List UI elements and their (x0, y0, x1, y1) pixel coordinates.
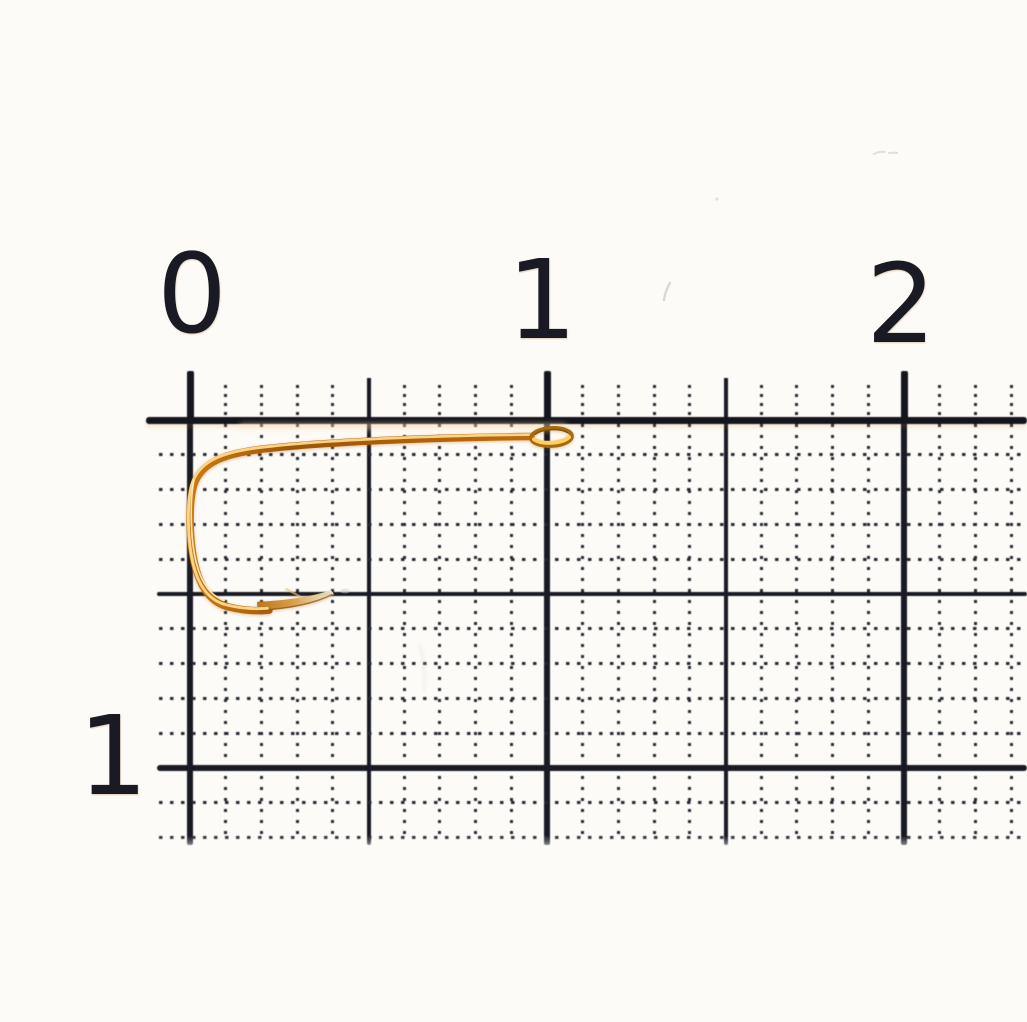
photo-hook-on-graph-paper: 0 1 2 1 (0, 0, 1027, 1022)
hook-wire-highlight (188, 435, 531, 609)
hook-bend-bright-core (191, 480, 225, 601)
hook-eye (531, 427, 572, 447)
hook-barb (287, 589, 302, 597)
fishing-hook (0, 0, 1027, 1022)
paper-edge-fade (0, 836, 1027, 866)
hook-shank-and-bend (190, 437, 531, 611)
